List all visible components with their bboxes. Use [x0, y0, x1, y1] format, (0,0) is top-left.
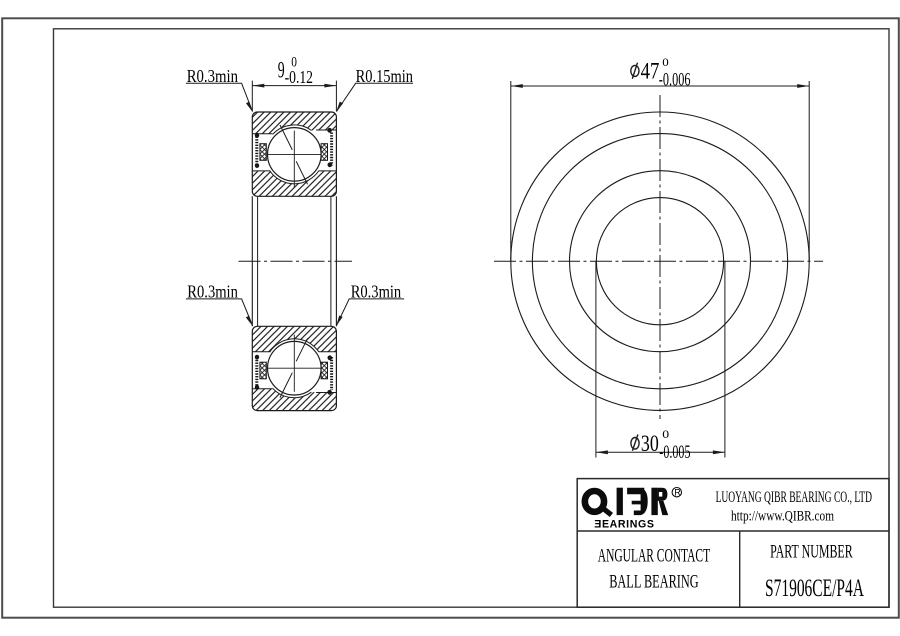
svg-text:BALL BEARING: BALL BEARING	[609, 572, 699, 593]
svg-text:-0.005: -0.005	[659, 443, 690, 463]
svg-text:0: 0	[662, 57, 669, 69]
svg-text:ANGULAR CONTACT: ANGULAR CONTACT	[598, 545, 711, 566]
svg-text:0: 0	[662, 429, 669, 441]
svg-text:-0.006: -0.006	[659, 70, 691, 90]
svg-text:http://www.QIBR.com: http://www.QIBR.com	[731, 509, 834, 525]
svg-text:ƎEARINGS: ƎEARINGS	[594, 519, 654, 531]
svg-text:-0.12: -0.12	[285, 67, 313, 87]
svg-text:PART NUMBER: PART NUMBER	[770, 541, 853, 562]
svg-text:47: 47	[641, 58, 660, 84]
svg-text:R: R	[674, 488, 681, 498]
svg-text:30: 30	[641, 431, 659, 457]
svg-text:LUOYANG QIBR BEARING CO., LTD: LUOYANG QIBR BEARING CO., LTD	[716, 489, 872, 506]
svg-text:S71906CE/P4A: S71906CE/P4A	[765, 575, 864, 602]
